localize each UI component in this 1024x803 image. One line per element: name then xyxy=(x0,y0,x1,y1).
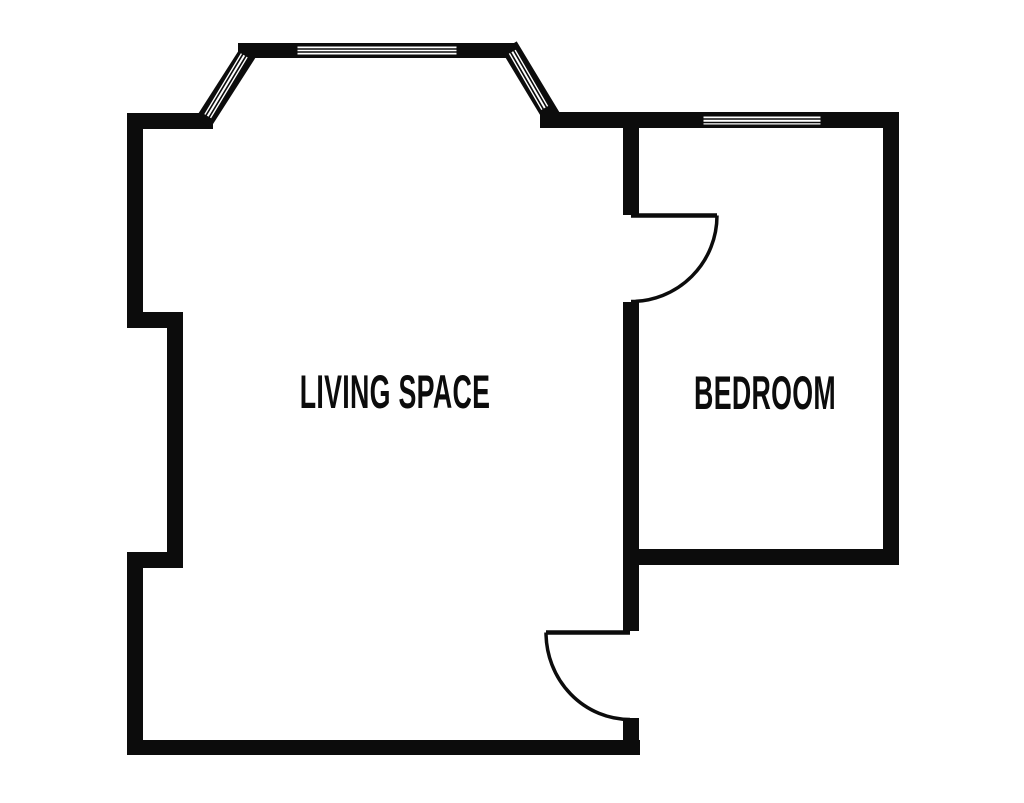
window-pane-line xyxy=(208,55,246,118)
bedroom-bottom-wall xyxy=(625,549,899,565)
windows xyxy=(202,45,822,126)
living-space-door-swing-arc xyxy=(546,633,630,720)
left-wall-inset xyxy=(167,312,183,568)
divider-wall-upper xyxy=(623,128,639,215)
floor-plan-canvas: LIVING SPACE BEDROOM xyxy=(0,0,1024,803)
bay-window-right-icon xyxy=(507,48,551,112)
bedroom-door-icon xyxy=(631,216,717,302)
living-space-door-icon xyxy=(546,633,630,720)
right-wall xyxy=(883,113,899,565)
divider-wall-stub xyxy=(623,718,639,742)
left-wall-lower xyxy=(127,552,143,755)
bay-window-left-icon xyxy=(202,51,250,120)
floor-plan: LIVING SPACE BEDROOM xyxy=(0,0,1024,803)
left-wall-upper xyxy=(127,113,143,328)
bay-window-center-icon xyxy=(296,45,458,56)
living-space-label: LIVING SPACE xyxy=(300,366,490,419)
bottom-wall xyxy=(127,740,640,755)
bedroom-window-icon xyxy=(702,115,822,126)
bedroom-label: BEDROOM xyxy=(694,367,836,420)
bedroom-door-swing-arc xyxy=(631,216,717,302)
bay-window-center-frame xyxy=(296,45,458,56)
bedroom-window-frame xyxy=(702,115,822,126)
window-pane-line xyxy=(513,50,547,109)
divider-wall-middle xyxy=(623,302,639,631)
